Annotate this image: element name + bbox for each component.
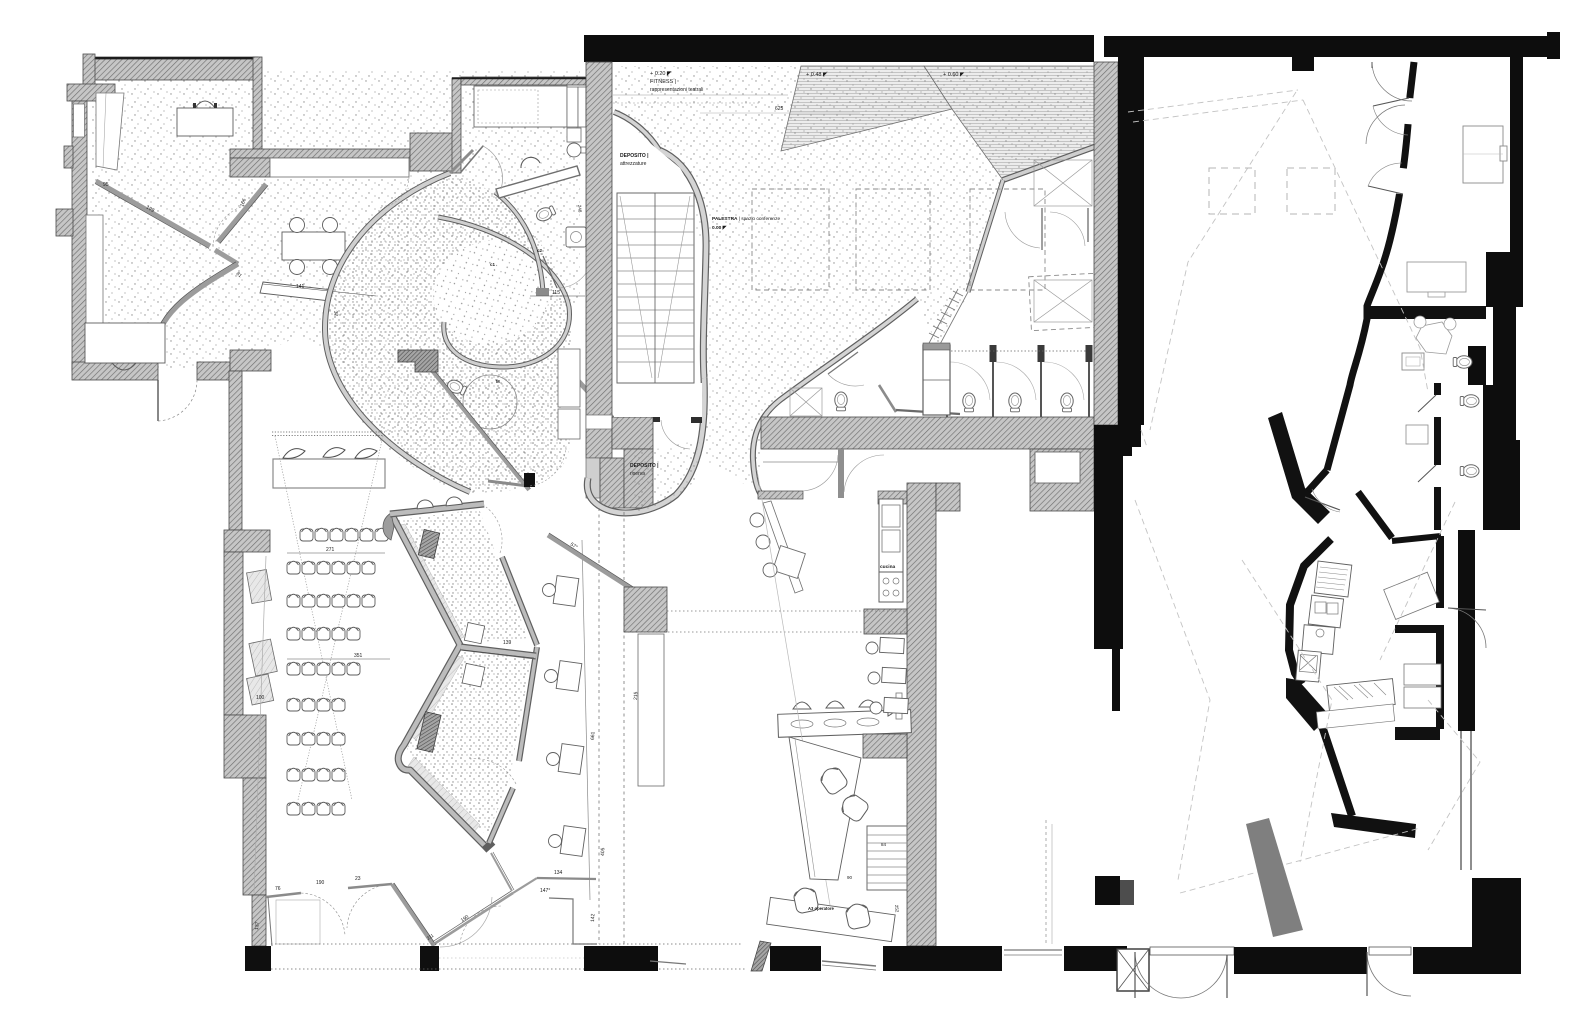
svg-text:attrezzature: attrezzature (620, 161, 647, 167)
svg-text:405: 405 (600, 847, 606, 856)
svg-text:252: 252 (894, 905, 900, 913)
svg-text:100: 100 (256, 695, 265, 701)
svg-text:95: 95 (103, 182, 109, 188)
svg-text:115: 115 (552, 290, 560, 296)
svg-text:139: 139 (503, 640, 512, 646)
svg-text:142: 142 (590, 913, 596, 922)
svg-text:137: 137 (254, 921, 261, 930)
svg-text:c2: c2 (537, 248, 543, 253)
svg-text:+ 0.60 ◤: + 0.60 ◤ (943, 72, 965, 78)
svg-text:90: 90 (847, 875, 853, 880)
svg-text:661: 661 (590, 731, 596, 740)
svg-text:76: 76 (275, 886, 281, 892)
svg-text:625: 625 (775, 106, 784, 112)
svg-text:190: 190 (316, 880, 325, 886)
svg-text:141: 141 (296, 284, 305, 290)
svg-text:134: 134 (554, 870, 563, 876)
svg-text:M: M (496, 379, 500, 384)
svg-text:PALESTRA | spazio conferenze: PALESTRA | spazio conferenze (712, 216, 780, 222)
svg-text:cucina: cucina (880, 564, 896, 570)
svg-text:+ 0.48 ◤: + 0.48 ◤ (806, 72, 828, 78)
svg-text:c1: c1 (490, 262, 496, 267)
svg-text:rappresentazioni teatrali: rappresentazioni teatrali (650, 87, 703, 93)
svg-text:215: 215 (633, 691, 639, 700)
svg-text:248: 248 (577, 205, 583, 213)
svg-text:FITNESS |: FITNESS | (650, 79, 676, 85)
svg-text:271: 271 (326, 547, 335, 553)
svg-text:23: 23 (355, 876, 361, 882)
svg-text:351: 351 (354, 653, 363, 659)
svg-text:DEPOSITO |: DEPOSITO | (620, 153, 649, 159)
svg-text:0.00 ◤: 0.00 ◤ (712, 225, 728, 231)
svg-text:84: 84 (881, 842, 887, 847)
svg-text:A3 operatore: A3 operatore (808, 906, 835, 911)
svg-text:147°: 147° (540, 888, 550, 894)
svg-text:+ 0.20 ◤: + 0.20 ◤ (650, 71, 672, 77)
